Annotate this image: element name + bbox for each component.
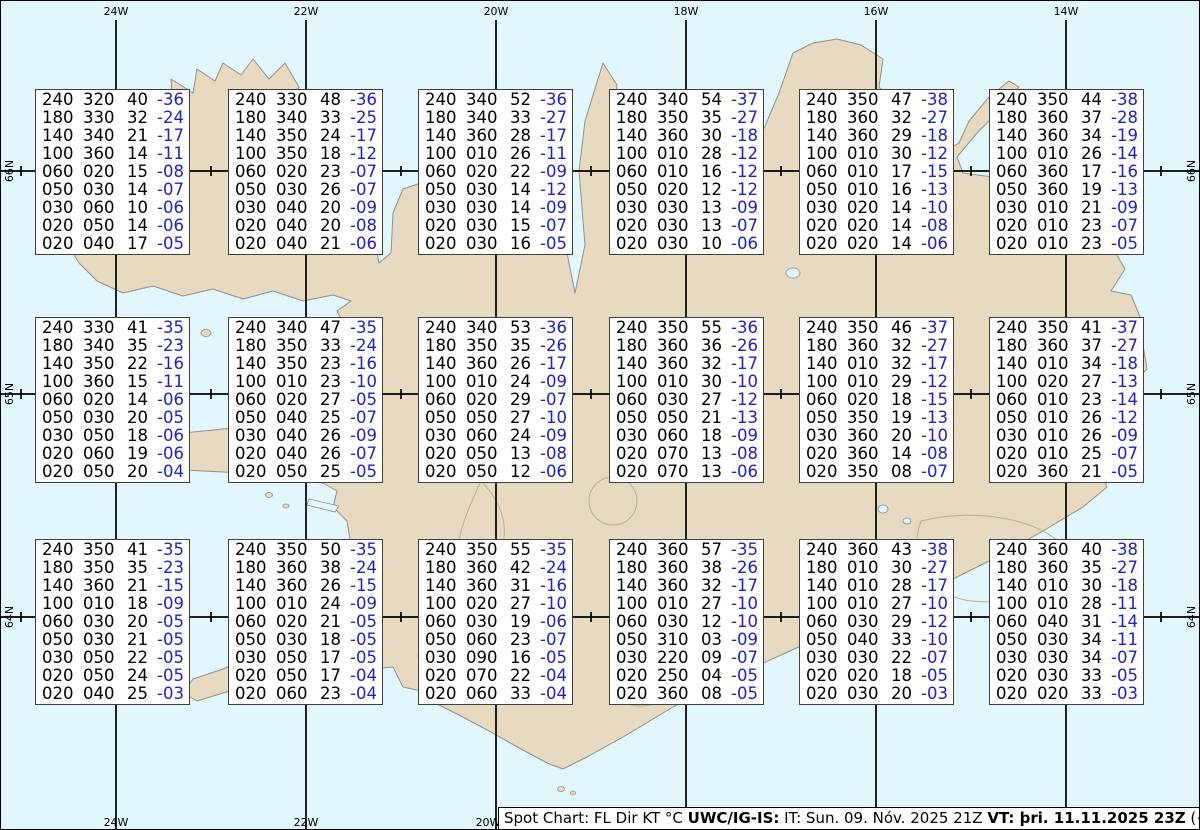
- dir-value: 050: [83, 427, 127, 445]
- fl-value: 180: [996, 337, 1037, 355]
- kt-value: 41: [127, 319, 157, 337]
- dir-value: 020: [847, 199, 891, 217]
- temp-value: -15: [157, 577, 184, 595]
- longitude-label: 24W: [104, 6, 129, 18]
- temp-value: -12: [1111, 409, 1138, 427]
- dir-value: 010: [1037, 427, 1081, 445]
- dir-value: 050: [276, 667, 320, 685]
- fl-value: 240: [616, 91, 657, 109]
- dir-value: 090: [466, 649, 510, 667]
- temp-value: -06: [157, 217, 184, 235]
- kt-value: 18: [127, 595, 157, 613]
- dir-value: 010: [1037, 217, 1081, 235]
- dir-value: 030: [466, 235, 510, 253]
- data-row: 10001029-12: [806, 373, 948, 391]
- fl-value: 050: [235, 631, 276, 649]
- temp-value: -10: [731, 613, 758, 631]
- fl-value: 050: [616, 409, 657, 427]
- kt-value: 15: [127, 163, 157, 181]
- dir-value: 040: [276, 409, 320, 427]
- data-row: 10001027-10: [616, 595, 758, 613]
- dir-value: 050: [276, 649, 320, 667]
- dir-value: 350: [83, 541, 127, 559]
- data-row: 14036034-19: [996, 127, 1138, 145]
- dir-value: 020: [276, 613, 320, 631]
- data-row: 10001026-11: [425, 145, 567, 163]
- fl-value: 060: [235, 613, 276, 631]
- spot-data-box: 24035055-3618036036-2614036032-171000103…: [609, 317, 764, 483]
- fl-value: 060: [42, 163, 83, 181]
- dir-value: 030: [466, 217, 510, 235]
- data-row: 24035055-36: [616, 319, 758, 337]
- kt-value: 24: [510, 373, 540, 391]
- dir-value: 340: [466, 91, 510, 109]
- dir-value: 060: [276, 685, 320, 703]
- dir-value: 020: [276, 163, 320, 181]
- fl-value: 060: [616, 163, 657, 181]
- data-row: 05003034-11: [996, 631, 1138, 649]
- temp-value: -05: [1111, 463, 1138, 481]
- fl-value: 180: [806, 559, 847, 577]
- dir-value: 360: [657, 577, 701, 595]
- dir-value: 010: [847, 181, 891, 199]
- longitude-label: 18W: [674, 6, 699, 18]
- temp-value: -26: [731, 337, 758, 355]
- data-row: 18036036-26: [616, 337, 758, 355]
- fl-value: 020: [235, 445, 276, 463]
- data-row: 03006024-09: [425, 427, 567, 445]
- data-row: 03004026-09: [235, 427, 377, 445]
- temp-value: -10: [540, 409, 567, 427]
- kt-value: 29: [891, 373, 921, 391]
- data-row: 02005025-05: [235, 463, 377, 481]
- data-row: 14001030-18: [996, 577, 1138, 595]
- temp-value: -12: [350, 145, 377, 163]
- dir-value: 350: [657, 109, 701, 127]
- kt-value: 14: [891, 445, 921, 463]
- fl-value: 240: [425, 91, 466, 109]
- longitude-label: 16W: [864, 6, 889, 18]
- kt-value: 18: [320, 631, 350, 649]
- temp-value: -05: [157, 667, 184, 685]
- temp-value: -05: [157, 409, 184, 427]
- dir-value: 350: [276, 127, 320, 145]
- dir-value: 360: [657, 685, 701, 703]
- dir-value: 010: [276, 595, 320, 613]
- kt-value: 21: [127, 631, 157, 649]
- data-row: 18034033-25: [235, 109, 377, 127]
- data-row: 03002014-10: [806, 199, 948, 217]
- kt-value: 27: [320, 391, 350, 409]
- temp-value: -03: [921, 685, 948, 703]
- temp-value: -07: [540, 217, 567, 235]
- data-row: 10035018-12: [235, 145, 377, 163]
- kt-value: 30: [701, 373, 731, 391]
- kt-value: 13: [701, 217, 731, 235]
- temp-value: -38: [1111, 91, 1138, 109]
- dir-value: 040: [276, 235, 320, 253]
- fl-value: 030: [235, 199, 276, 217]
- temp-value: -10: [921, 595, 948, 613]
- data-row: 24034054-37: [616, 91, 758, 109]
- kt-value: 33: [1081, 685, 1111, 703]
- dir-value: 360: [847, 127, 891, 145]
- temp-value: -15: [921, 163, 948, 181]
- data-row: 18035035-26: [425, 337, 567, 355]
- longitude-label: 14W: [1054, 6, 1079, 18]
- temp-value: -14: [1111, 613, 1138, 631]
- kt-value: 38: [320, 559, 350, 577]
- dir-value: 020: [657, 181, 701, 199]
- fl-value: 020: [42, 235, 83, 253]
- fl-value: 050: [616, 631, 657, 649]
- data-row: 03036020-10: [806, 427, 948, 445]
- kt-value: 08: [701, 685, 731, 703]
- fl-value: 060: [42, 391, 83, 409]
- data-row: 02036008-05: [616, 685, 758, 703]
- fl-value: 240: [996, 91, 1037, 109]
- kt-value: 19: [510, 613, 540, 631]
- kt-value: 35: [127, 559, 157, 577]
- fl-value: 060: [806, 163, 847, 181]
- kt-value: 14: [510, 181, 540, 199]
- kt-value: 20: [127, 463, 157, 481]
- dir-value: 050: [657, 409, 701, 427]
- kt-value: 40: [127, 91, 157, 109]
- kt-value: 55: [701, 319, 731, 337]
- data-row: 06036017-16: [996, 163, 1138, 181]
- data-row: 14036030-18: [616, 127, 758, 145]
- data-row: 02001025-07: [996, 445, 1138, 463]
- data-row: 24036057-35: [616, 541, 758, 559]
- data-row: 02001023-07: [996, 217, 1138, 235]
- dir-value: 030: [1037, 631, 1081, 649]
- spot-data-box: 24033041-3518034035-2314035022-161003601…: [35, 317, 190, 483]
- temp-value: -10: [731, 595, 758, 613]
- temp-value: -36: [350, 91, 377, 109]
- fl-value: 050: [996, 181, 1037, 199]
- temp-value: -09: [350, 595, 377, 613]
- kt-value: 41: [1081, 319, 1111, 337]
- dir-value: 350: [83, 355, 127, 373]
- fl-value: 060: [996, 613, 1037, 631]
- data-row: 24034053-36: [425, 319, 567, 337]
- fl-value: 100: [42, 145, 83, 163]
- fl-value: 020: [425, 217, 466, 235]
- data-row: 05003014-07: [42, 181, 184, 199]
- temp-value: -16: [540, 577, 567, 595]
- data-row: 03006010-06: [42, 199, 184, 217]
- data-row: 02035008-07: [806, 463, 948, 481]
- kt-value: 18: [127, 427, 157, 445]
- fl-value: 030: [996, 649, 1037, 667]
- fl-value: 180: [616, 559, 657, 577]
- dir-value: 350: [847, 463, 891, 481]
- dir-value: 360: [1037, 181, 1081, 199]
- dir-value: 010: [847, 355, 891, 373]
- data-row: 18036038-26: [616, 559, 758, 577]
- fl-value: 030: [235, 649, 276, 667]
- temp-value: -37: [731, 91, 758, 109]
- data-row: 02003013-07: [616, 217, 758, 235]
- kt-value: 23: [320, 685, 350, 703]
- data-row: 03004020-09: [235, 199, 377, 217]
- dir-value: 360: [1037, 109, 1081, 127]
- kt-value: 32: [891, 355, 921, 373]
- dir-value: 360: [466, 355, 510, 373]
- kt-value: 38: [701, 559, 731, 577]
- data-row: 14036032-17: [616, 355, 758, 373]
- data-row: 02006023-04: [235, 685, 377, 703]
- temp-value: -38: [921, 91, 948, 109]
- fl-value: 180: [42, 337, 83, 355]
- temp-value: -09: [540, 427, 567, 445]
- kt-value: 12: [701, 181, 731, 199]
- fl-value: 140: [42, 127, 83, 145]
- data-row: 02002018-05: [806, 667, 948, 685]
- latitude-label: 66N: [4, 160, 16, 182]
- data-row: 14034021-17: [42, 127, 184, 145]
- data-row: 18034035-23: [42, 337, 184, 355]
- temp-value: -07: [350, 181, 377, 199]
- fl-value: 180: [996, 109, 1037, 127]
- fl-value: 060: [616, 391, 657, 409]
- dir-value: 340: [276, 109, 320, 127]
- fl-value: 020: [235, 463, 276, 481]
- fl-value: 100: [42, 373, 83, 391]
- fl-value: 240: [806, 541, 847, 559]
- spot-data-box: 24036043-3818001030-2714001028-171000102…: [799, 539, 954, 705]
- data-row: 03005022-05: [42, 649, 184, 667]
- fl-value: 240: [425, 541, 466, 559]
- dir-value: 030: [83, 613, 127, 631]
- fl-value: 020: [616, 667, 657, 685]
- fl-value: 020: [425, 235, 466, 253]
- temp-value: -12: [731, 145, 758, 163]
- fl-value: 020: [42, 445, 83, 463]
- kt-value: 22: [891, 649, 921, 667]
- temp-value: -05: [731, 667, 758, 685]
- temp-value: -05: [540, 649, 567, 667]
- data-row: 06002022-09: [425, 163, 567, 181]
- kt-value: 16: [510, 235, 540, 253]
- temp-value: -07: [350, 445, 377, 463]
- kt-value: 35: [1081, 559, 1111, 577]
- temp-value: -09: [731, 631, 758, 649]
- dir-value: 020: [466, 163, 510, 181]
- kt-value: 22: [127, 649, 157, 667]
- temp-value: -05: [350, 649, 377, 667]
- temp-value: -26: [540, 337, 567, 355]
- longitude-label: 22W: [294, 817, 319, 829]
- dir-value: 350: [847, 91, 891, 109]
- data-row: 02005014-06: [42, 217, 184, 235]
- temp-value: -09: [350, 427, 377, 445]
- data-row: 02003015-07: [425, 217, 567, 235]
- kt-value: 32: [891, 109, 921, 127]
- fl-value: 020: [42, 667, 83, 685]
- kt-value: 35: [701, 109, 731, 127]
- kt-value: 24: [127, 667, 157, 685]
- kt-value: 26: [320, 427, 350, 445]
- temp-value: -09: [350, 199, 377, 217]
- fl-value: 240: [42, 541, 83, 559]
- fl-value: 180: [235, 109, 276, 127]
- fl-value: 050: [996, 631, 1037, 649]
- dir-value: 010: [657, 595, 701, 613]
- dir-value: 030: [466, 181, 510, 199]
- fl-value: 030: [42, 649, 83, 667]
- temp-value: -24: [350, 559, 377, 577]
- fl-value: 100: [425, 373, 466, 391]
- kt-value: 18: [320, 145, 350, 163]
- dir-value: 030: [847, 685, 891, 703]
- data-row: 10002027-13: [996, 373, 1138, 391]
- kt-value: 42: [510, 559, 540, 577]
- temp-value: -38: [921, 541, 948, 559]
- temp-value: -27: [1111, 337, 1138, 355]
- fl-value: 050: [806, 181, 847, 199]
- data-row: 05036019-13: [996, 181, 1138, 199]
- kt-value: 15: [510, 217, 540, 235]
- fl-value: 020: [616, 217, 657, 235]
- data-row: 18035035-27: [616, 109, 758, 127]
- temp-value: -17: [731, 577, 758, 595]
- temp-value: -36: [157, 91, 184, 109]
- data-row: 24033048-36: [235, 91, 377, 109]
- kt-value: 24: [320, 127, 350, 145]
- fl-value: 240: [806, 319, 847, 337]
- temp-value: -24: [350, 337, 377, 355]
- dir-value: 010: [657, 373, 701, 391]
- data-row: 10002027-10: [425, 595, 567, 613]
- fl-value: 140: [42, 355, 83, 373]
- kt-value: 17: [1081, 163, 1111, 181]
- fl-value: 140: [42, 577, 83, 595]
- data-row: 05003018-05: [235, 631, 377, 649]
- fl-value: 020: [996, 217, 1037, 235]
- temp-value: -07: [157, 181, 184, 199]
- data-row: 05005027-10: [425, 409, 567, 427]
- data-row: 18036042-24: [425, 559, 567, 577]
- fl-value: 140: [616, 127, 657, 145]
- fl-value: 240: [806, 91, 847, 109]
- dir-value: 330: [83, 319, 127, 337]
- kt-value: 34: [1081, 631, 1111, 649]
- fl-value: 240: [616, 541, 657, 559]
- temp-value: -17: [540, 355, 567, 373]
- temp-value: -06: [157, 199, 184, 217]
- temp-value: -13: [1111, 373, 1138, 391]
- spot-data-box: 24035055-3518036042-2414036031-161000202…: [418, 539, 573, 705]
- data-row: 02007022-04: [425, 667, 567, 685]
- kt-value: 20: [320, 217, 350, 235]
- dir-value: 350: [276, 355, 320, 373]
- data-row: 24034052-36: [425, 91, 567, 109]
- temp-value: -13: [731, 409, 758, 427]
- dir-value: 040: [276, 427, 320, 445]
- temp-value: -10: [350, 373, 377, 391]
- kt-value: 22: [127, 355, 157, 373]
- temp-value: -13: [921, 409, 948, 427]
- temp-value: -05: [157, 631, 184, 649]
- temp-value: -35: [157, 319, 184, 337]
- fl-value: 020: [996, 235, 1037, 253]
- dir-value: 060: [83, 445, 127, 463]
- dir-value: 030: [847, 649, 891, 667]
- kt-value: 22: [510, 163, 540, 181]
- temp-value: -12: [921, 145, 948, 163]
- dir-value: 010: [466, 373, 510, 391]
- fl-value: 100: [806, 373, 847, 391]
- kt-value: 21: [701, 409, 731, 427]
- data-row: 03022009-07: [616, 649, 758, 667]
- fl-value: 140: [806, 355, 847, 373]
- latitude-label: 66N: [1186, 160, 1198, 182]
- dir-value: 030: [466, 199, 510, 217]
- data-row: 14035024-17: [235, 127, 377, 145]
- data-row: 14036026-15: [235, 577, 377, 595]
- data-row: 02006019-06: [42, 445, 184, 463]
- temp-value: -16: [350, 355, 377, 373]
- fl-value: 050: [616, 181, 657, 199]
- latitude-label: 65N: [1186, 383, 1198, 405]
- dir-value: 060: [657, 427, 701, 445]
- kt-value: 41: [127, 541, 157, 559]
- spot-data-box: 24035044-3818036037-2814036034-191000102…: [989, 89, 1144, 255]
- spot-chart-canvas: 24W22W20W18W16W14W 24W22W20W 66N65N64N 6…: [0, 0, 1200, 830]
- data-row: 24035041-35: [42, 541, 184, 559]
- fl-value: 050: [42, 409, 83, 427]
- kt-value: 27: [510, 595, 540, 613]
- kt-value: 10: [701, 235, 731, 253]
- data-row: 02004026-07: [235, 445, 377, 463]
- temp-value: -17: [157, 127, 184, 145]
- dir-value: 010: [657, 145, 701, 163]
- temp-value: -05: [157, 613, 184, 631]
- data-row: 14001028-17: [806, 577, 948, 595]
- kt-value: 13: [701, 445, 731, 463]
- kt-value: 17: [891, 163, 921, 181]
- kt-value: 19: [127, 445, 157, 463]
- dir-value: 360: [276, 559, 320, 577]
- data-row: 03005018-06: [42, 427, 184, 445]
- chart-info-bar: Spot Chart: FL Dir KT °C UWC/IG-IS: IT: …: [498, 807, 1200, 830]
- data-row: 02003016-05: [425, 235, 567, 253]
- data-row: 06002015-08: [42, 163, 184, 181]
- kt-value: 40: [1081, 541, 1111, 559]
- kt-value: 14: [127, 217, 157, 235]
- temp-value: -12: [731, 163, 758, 181]
- data-row: 14036026-17: [425, 355, 567, 373]
- dir-value: 020: [1037, 685, 1081, 703]
- dir-value: 030: [276, 631, 320, 649]
- fl-value: 140: [425, 127, 466, 145]
- temp-value: -05: [350, 391, 377, 409]
- dir-value: 360: [657, 337, 701, 355]
- fl-value: 180: [806, 109, 847, 127]
- data-row: 06003029-12: [806, 613, 948, 631]
- kt-value: 20: [320, 199, 350, 217]
- data-row: 10001026-14: [996, 145, 1138, 163]
- fl-value: 100: [425, 145, 466, 163]
- temp-value: -15: [921, 391, 948, 409]
- data-row: 06003012-10: [616, 613, 758, 631]
- dir-value: 010: [847, 373, 891, 391]
- kt-value: 16: [891, 181, 921, 199]
- kt-value: 14: [891, 235, 921, 253]
- data-row: 05001016-13: [806, 181, 948, 199]
